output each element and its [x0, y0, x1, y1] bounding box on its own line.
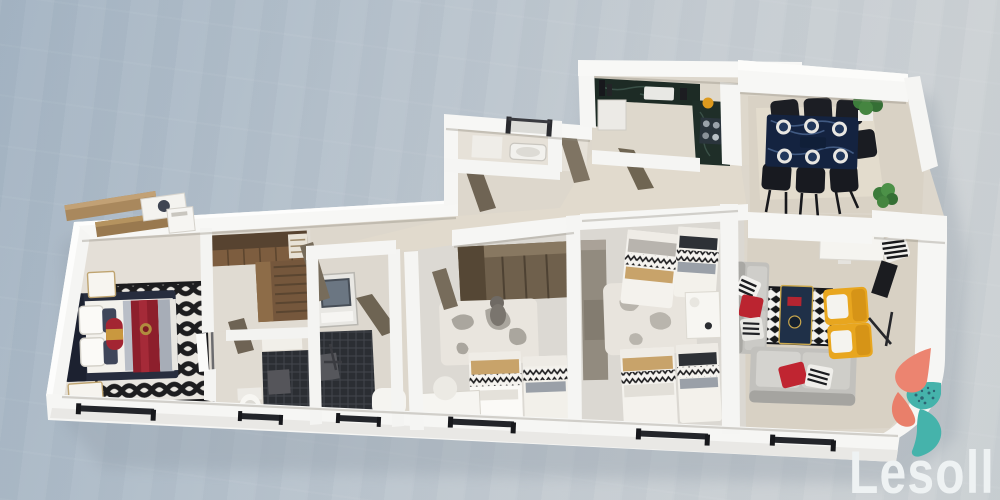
svg-text:Lesoll: Lesoll — [849, 439, 995, 500]
